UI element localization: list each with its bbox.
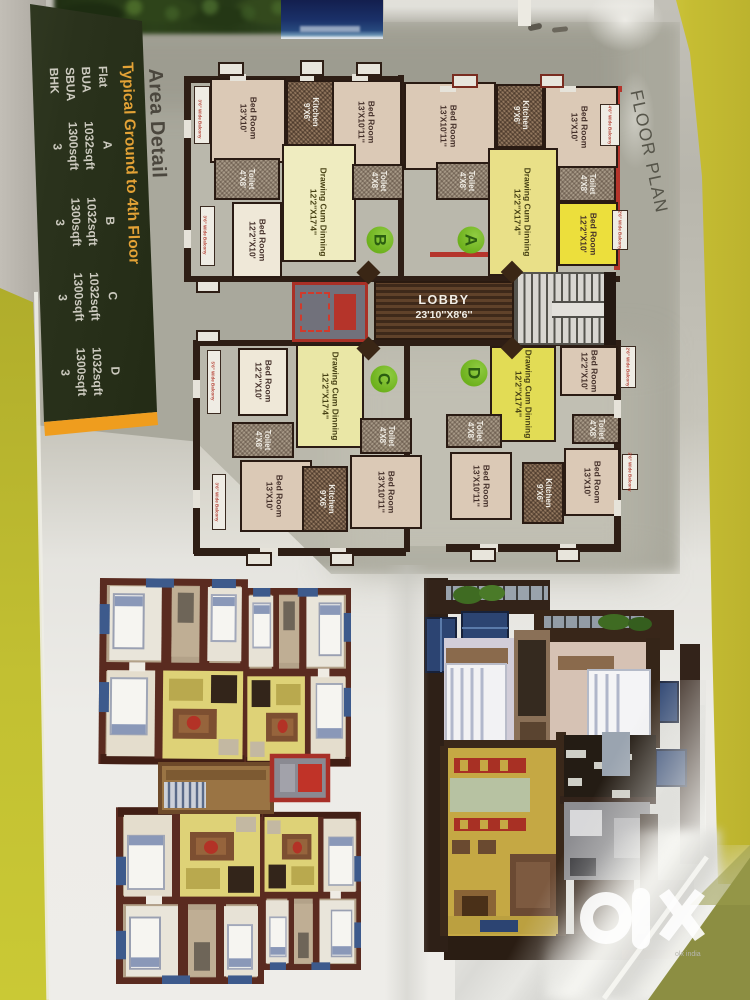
svg-text:olx india: olx india [675,951,701,958]
